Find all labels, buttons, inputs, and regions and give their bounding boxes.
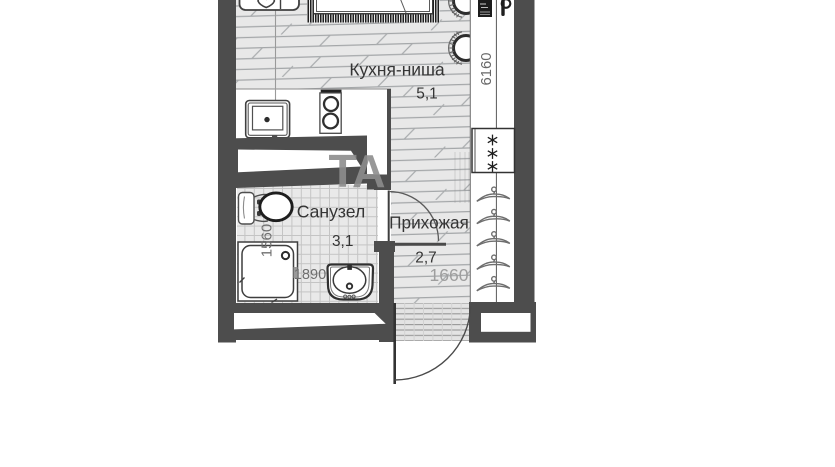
svg-text:1660: 1660 <box>430 265 469 285</box>
svg-text:5,1: 5,1 <box>416 85 437 102</box>
svg-text:Санузел: Санузел <box>297 202 366 222</box>
svg-text:Кухня-ниша: Кухня-ниша <box>349 59 445 79</box>
svg-text:ТА: ТА <box>329 145 385 197</box>
svg-text:6160: 6160 <box>479 53 495 86</box>
svg-text:2,7: 2,7 <box>415 249 436 266</box>
svg-text:3,1: 3,1 <box>332 233 353 250</box>
svg-text:Прихожая: Прихожая <box>389 213 469 233</box>
svg-text:1560: 1560 <box>258 224 275 257</box>
svg-text:1890: 1890 <box>294 267 326 283</box>
